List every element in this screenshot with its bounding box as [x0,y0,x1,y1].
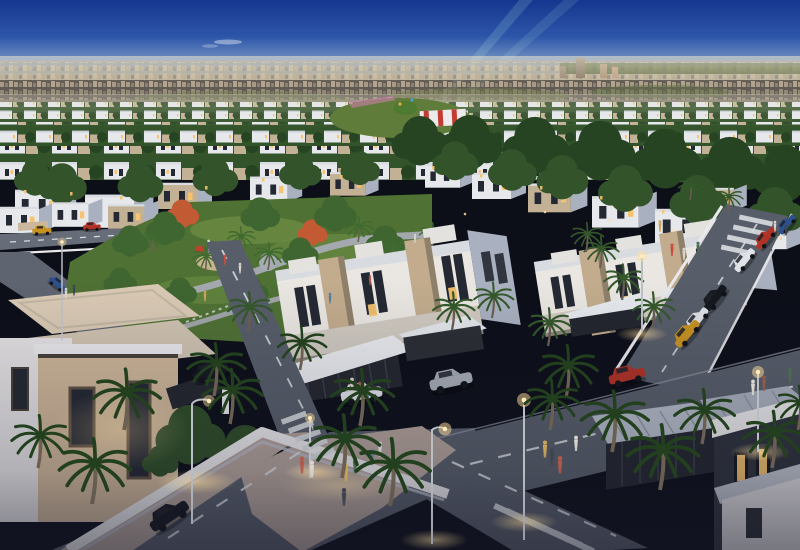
vignette [0,470,800,550]
cloud [214,40,242,45]
aerial-community-render: Aerial dusk rendering of a suburban vill… [0,0,800,550]
